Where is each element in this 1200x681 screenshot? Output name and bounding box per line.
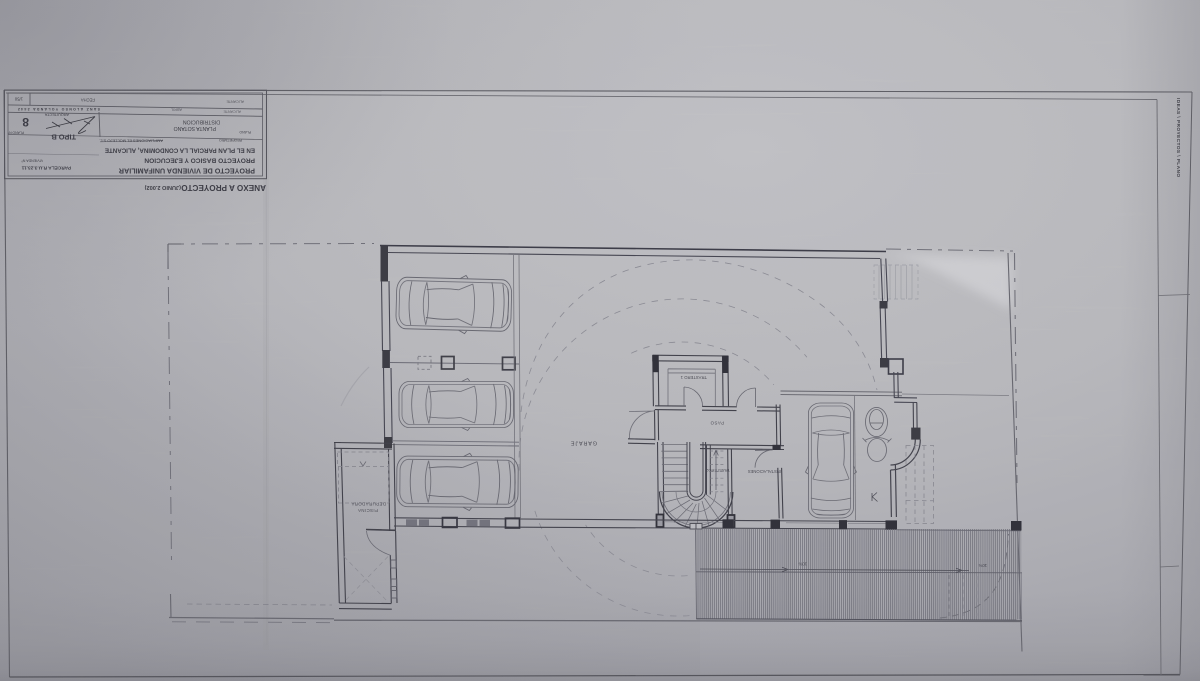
svg-text:PLANO: PLANO — [239, 130, 251, 134]
svg-text:TIPO B: TIPO B — [51, 133, 76, 142]
svg-text:ABRIL: ABRIL — [171, 108, 182, 112]
svg-text:FECHA: FECHA — [81, 98, 95, 103]
svg-text:DEPURADORA: DEPURADORA — [351, 502, 386, 507]
svg-text:ALICANTE: ALICANTE — [223, 110, 241, 114]
svg-text:DISTRIBUCION: DISTRIBUCION — [183, 119, 220, 125]
svg-text:EN EL PLAN PARCIAL LA CONDOMIN: EN EL PLAN PARCIAL LA CONDOMINA, ALICANT… — [105, 147, 255, 154]
svg-text:10%: 10% — [798, 562, 807, 567]
svg-text:1/50: 1/50 — [14, 97, 23, 102]
svg-text:PROYECTO BASICO Y EJECUCION: PROYECTO BASICO Y EJECUCION — [144, 157, 255, 164]
svg-text:INSTALACIONES: INSTALACIONES — [748, 469, 781, 474]
svg-text:PISCINA: PISCINA — [358, 508, 378, 513]
svg-text:ANEXO A PROYECTO: ANEXO A PROYECTO — [181, 183, 266, 192]
svg-text:ALICANTE: ALICANTE — [226, 100, 244, 104]
svg-text:10%: 10% — [978, 563, 987, 568]
svg-text:PLANO Nº: PLANO Nº — [7, 131, 24, 135]
svg-text:SANZ ALONSO YOLANDA 2442: SANZ ALONSO YOLANDA 2442 — [17, 107, 100, 111]
svg-text:8: 8 — [22, 115, 29, 129]
svg-text:PARCELA R.U.3.23.11: PARCELA R.U.3.23.11 — [21, 165, 71, 171]
svg-text:VIVIENDA Nº: VIVIENDA Nº — [21, 159, 43, 163]
svg-text:PLANTA SOTANO: PLANTA SOTANO — [174, 125, 216, 131]
svg-text:ARQUITECTA: ARQUITECTA — [44, 113, 69, 117]
svg-text:(JUNIO 2.002): (JUNIO 2.002) — [144, 184, 181, 190]
svg-text:TRASTERO2: TRASTERO2 — [705, 468, 730, 473]
svg-text:PROYECTO DE VIVIENDA UNIFAMILI: PROYECTO DE VIVIENDA UNIFAMILIAR — [118, 167, 255, 176]
svg-text:AMPLIACIONES EL MOLLEJO S.L: AMPLIACIONES EL MOLLEJO S.L. — [99, 139, 163, 144]
svg-text:TRASTERO 1: TRASTERO 1 — [680, 375, 707, 380]
svg-text:GARAJE: GARAJE — [570, 440, 597, 446]
svg-text:PASO: PASO — [710, 421, 724, 426]
svg-text:IDEAS \ PROYECTOS \ PLANO: IDEAS \ PROYECTOS \ PLANO — [1175, 98, 1181, 177]
svg-text:PROPIETARIO: PROPIETARIO — [219, 138, 242, 142]
